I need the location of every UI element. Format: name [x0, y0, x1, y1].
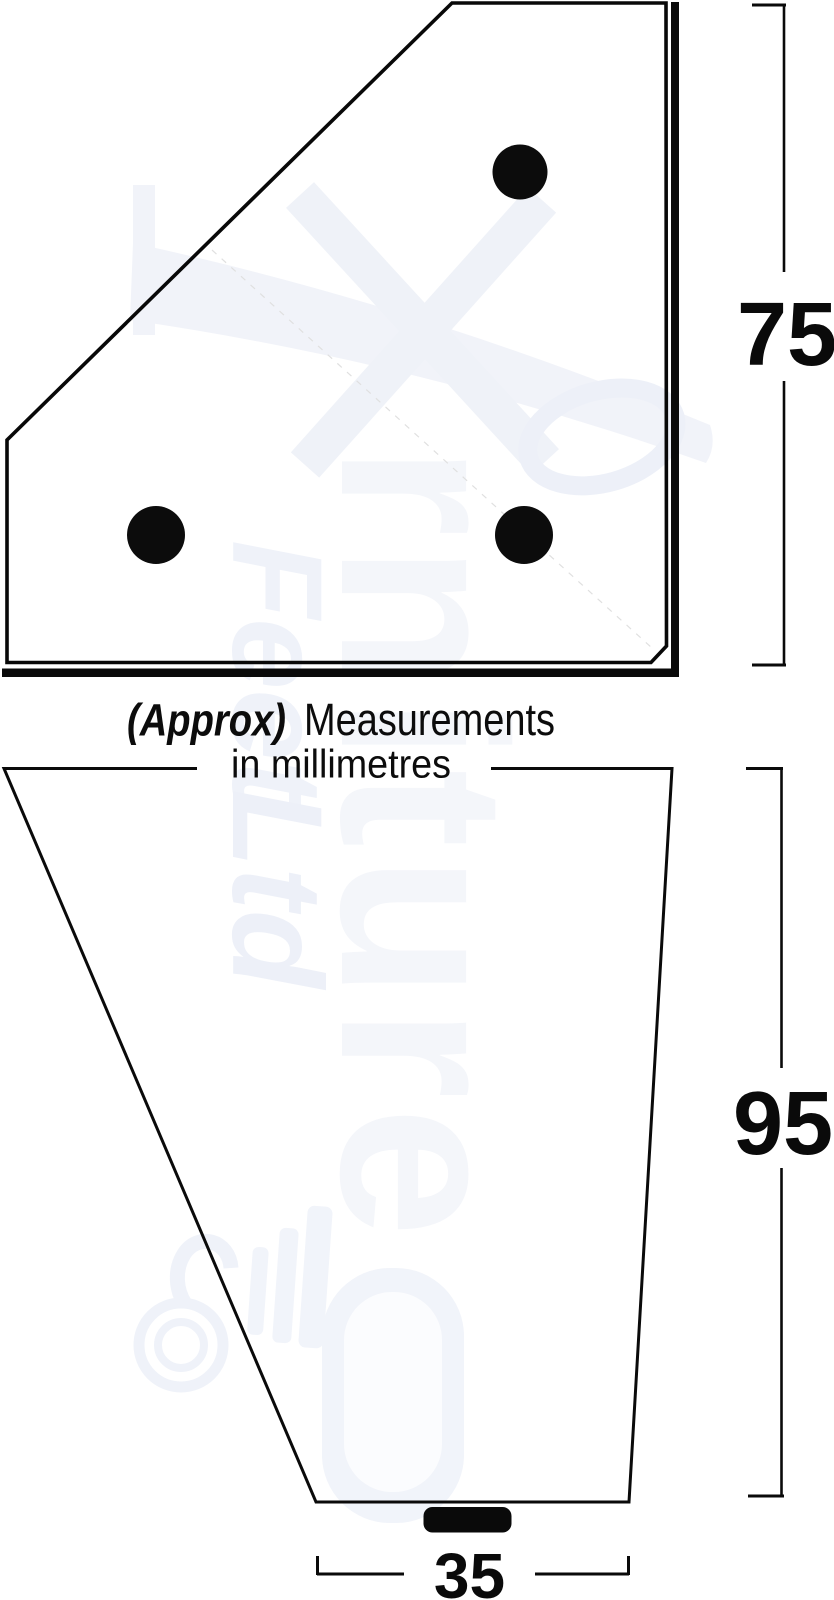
svg-text:Ltd: Ltd — [205, 789, 348, 991]
svg-text:(Approx): (Approx) — [127, 695, 286, 746]
svg-text:95: 95 — [733, 1074, 833, 1174]
svg-text:75: 75 — [737, 285, 834, 385]
svg-text:35: 35 — [434, 1540, 505, 1600]
svg-text:Measurements: Measurements — [304, 694, 555, 745]
svg-text:in millimetres: in millimetres — [231, 743, 451, 787]
